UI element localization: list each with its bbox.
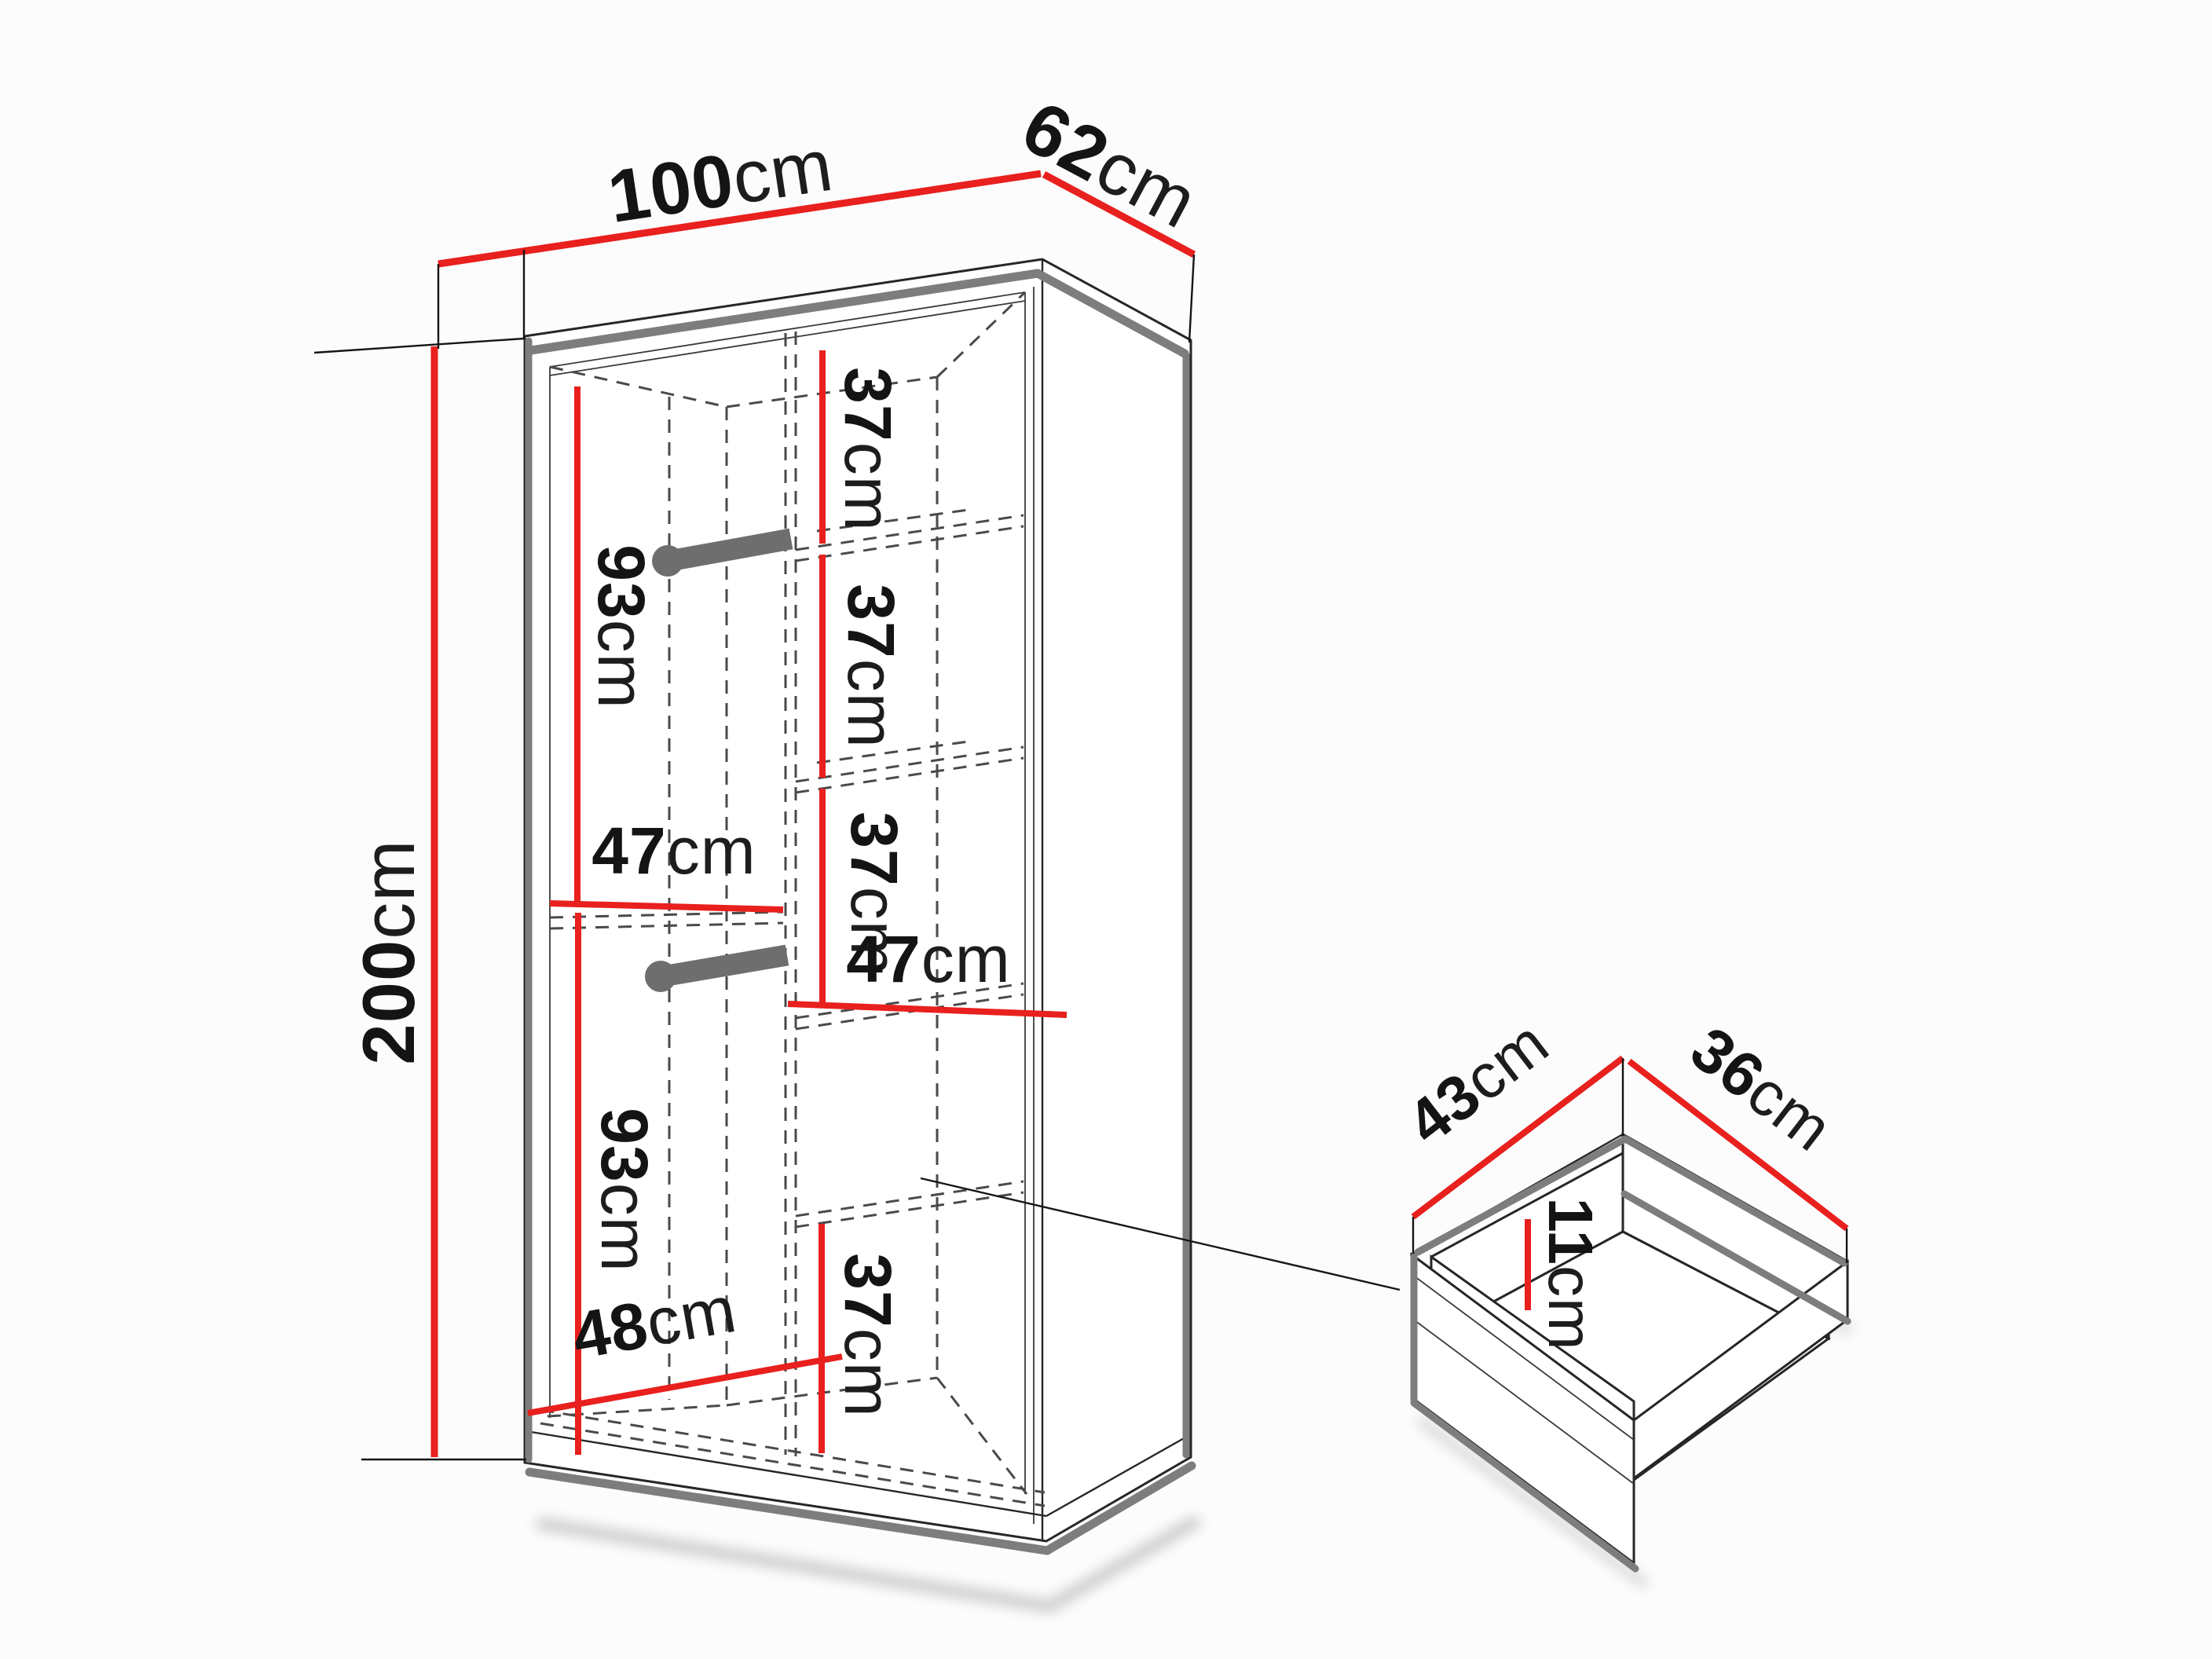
shelf-gap-4-dimension-label: 37cm xyxy=(831,1253,905,1417)
height-dimension-label: 200cm xyxy=(347,839,430,1064)
shelf-gap-1-dimension-label: 37cm xyxy=(831,367,905,531)
hang-top-dimension-label: 93cm xyxy=(584,544,658,709)
depth-right-extension-line xyxy=(1189,255,1194,342)
shelf-gap-2-dimension-label: 37cm xyxy=(834,584,908,748)
height-top-extension-line xyxy=(314,339,524,353)
drawer-depth-dimension-label: 43cm xyxy=(1394,1007,1562,1158)
width-dimension-label: 100cm xyxy=(602,123,838,238)
right-width-dimension-label: 47cm xyxy=(846,922,1010,996)
furniture-dimension-diagram: 100cm 62cm 200cm 93cm 47cm 93cm 48cm 37c… xyxy=(0,0,2212,1659)
wardrobe-bottom-shadow xyxy=(542,1522,1194,1606)
mid-shelf-width-dimension-label: 47cm xyxy=(591,814,756,888)
drawer-height-dimension-label: 11cm xyxy=(1536,1197,1606,1350)
diagram-canvas: 100cm 62cm 200cm 93cm 47cm 93cm 48cm 37c… xyxy=(0,0,2212,1659)
drawer-width-dimension-label: 36cm xyxy=(1678,1013,1845,1164)
depth-dimension-label: 62cm xyxy=(1009,85,1210,244)
hang-bottom-dimension-label: 93cm xyxy=(588,1108,661,1272)
